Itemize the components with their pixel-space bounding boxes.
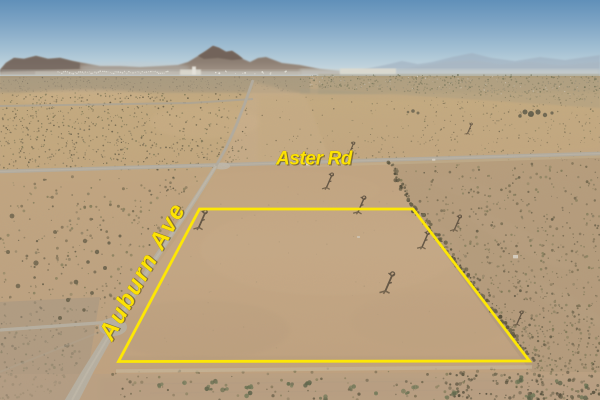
svg-text:Aster Rd: Aster Rd xyxy=(275,149,353,170)
